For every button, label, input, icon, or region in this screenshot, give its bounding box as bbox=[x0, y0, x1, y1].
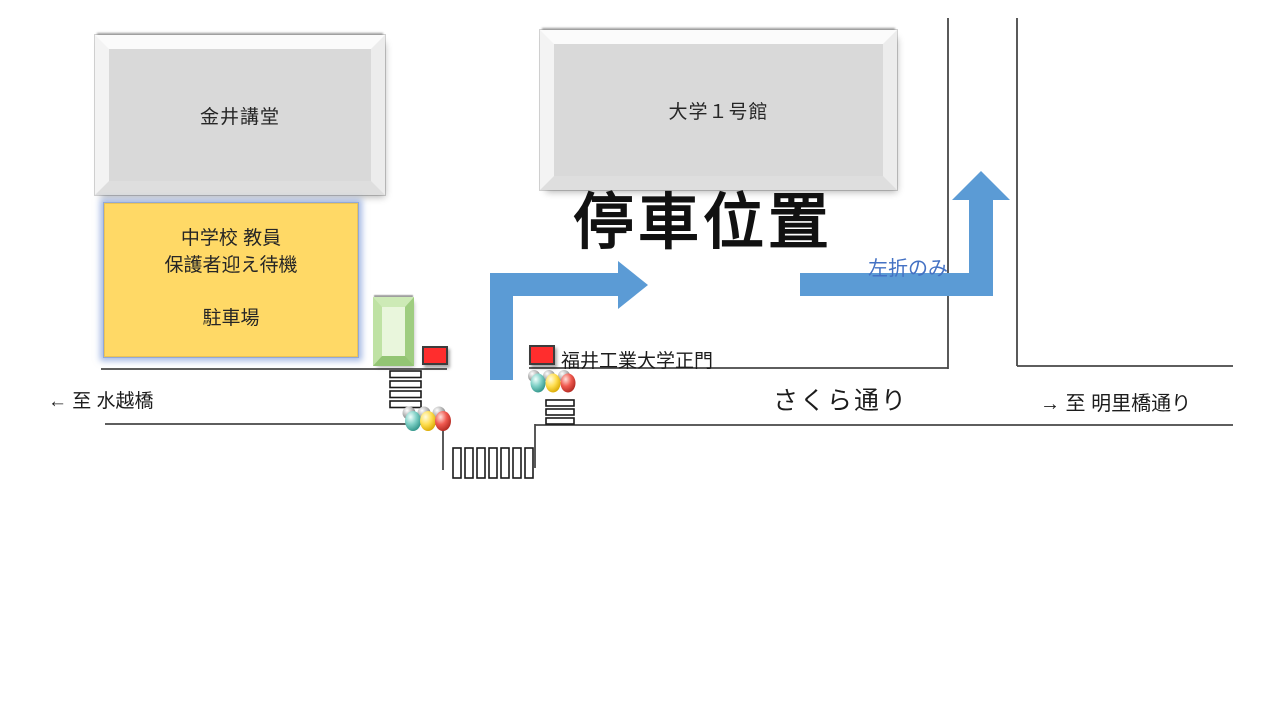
crosswalk-icon-side-street bbox=[453, 448, 533, 478]
crosswalk-icon-main-gate bbox=[546, 400, 574, 424]
crosswalk-icon-gate bbox=[390, 371, 421, 408]
roads-and-route-layer bbox=[0, 0, 1280, 720]
route-arrow-exit-left-turn-icon bbox=[800, 171, 1010, 296]
traffic-light-icon-main-gate bbox=[528, 370, 576, 393]
traffic-light-icon-gate-side bbox=[403, 407, 452, 432]
road-lines bbox=[101, 18, 1233, 470]
route-arrow-entry-icon bbox=[490, 261, 648, 380]
campus-access-map: 金井講堂 大学１号館 中学校 教員 保護者迎え待機 駐車場 bbox=[0, 0, 1280, 720]
